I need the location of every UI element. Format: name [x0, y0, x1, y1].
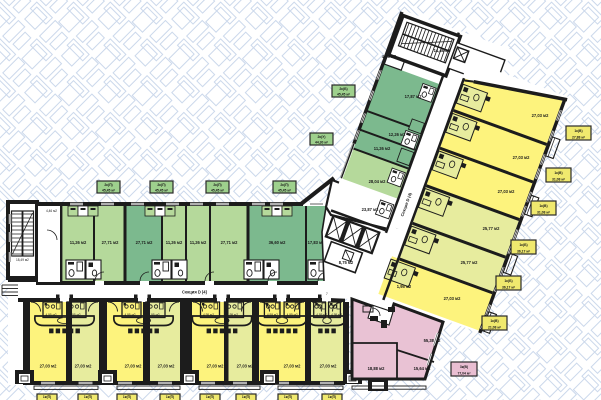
svg-text:27,03 м2: 27,03 м2 [75, 364, 92, 369]
svg-text:45,45 м²: 45,45 м² [102, 189, 116, 193]
svg-text:27,03 м2: 27,03 м2 [513, 155, 530, 160]
svg-text:3к(В): 3к(В) [460, 365, 468, 369]
svg-text:25,77 м2: 25,77 м2 [483, 226, 500, 231]
svg-text:1,95 м2: 1,95 м2 [397, 284, 412, 289]
svg-text:1к(Б): 1к(Б) [504, 279, 512, 283]
svg-text:11,26 м2: 11,26 м2 [70, 240, 87, 245]
svg-text:27,03 м2: 27,03 м2 [207, 364, 224, 369]
svg-text:36,17 м²: 36,17 м² [517, 250, 531, 254]
svg-text:21,08 м²: 21,08 м² [488, 326, 502, 330]
svg-text:27,03 м2: 27,03 м2 [40, 364, 57, 369]
svg-text:36,17 м²: 36,17 м² [502, 286, 516, 290]
svg-text:1к(В): 1к(В) [490, 319, 498, 323]
svg-text:27,71 м2: 27,71 м2 [221, 240, 238, 245]
svg-text:27,71 м2: 27,71 м2 [102, 240, 119, 245]
svg-text:1к(В): 1к(В) [539, 204, 547, 208]
svg-text:27,71 м2: 27,71 м2 [136, 240, 153, 245]
svg-text:2к(П): 2к(П) [157, 183, 165, 187]
svg-text:27,03 м2: 27,03 м2 [498, 189, 515, 194]
svg-text:45,45 м²: 45,45 м² [211, 189, 225, 193]
svg-text:55,38 м2: 55,38 м2 [424, 338, 441, 343]
svg-text:18,49 м2: 18,49 м2 [16, 258, 29, 262]
svg-text:28,04 м2: 28,04 м2 [369, 179, 386, 184]
svg-text:8,75 м2: 8,75 м2 [339, 260, 354, 265]
svg-text:27,03 м2: 27,03 м2 [158, 364, 175, 369]
svg-text:11,26 м2: 11,26 м2 [166, 240, 183, 245]
svg-text:25,77 м2: 25,77 м2 [461, 260, 478, 265]
svg-text:36,60 м2: 36,60 м2 [269, 240, 286, 245]
svg-text:27,03 м2: 27,03 м2 [320, 364, 337, 369]
svg-text:44,30 м²: 44,30 м² [315, 141, 329, 145]
svg-text:2к(У): 2к(У) [318, 135, 326, 139]
svg-text:27,03 м2: 27,03 м2 [237, 364, 254, 369]
svg-text:2к(П): 2к(П) [213, 183, 221, 187]
svg-text:45,45 м²: 45,45 м² [337, 93, 351, 97]
svg-text:23,87 м2: 23,87 м2 [362, 207, 379, 212]
svg-text:Секция D (4): Секция D (4) [182, 290, 208, 295]
svg-text:15,64 м2: 15,64 м2 [414, 366, 431, 371]
svg-text:1к(Б): 1к(Б) [519, 243, 527, 247]
svg-text:11,26 м2: 11,26 м2 [374, 146, 391, 151]
svg-text:27,88 м²: 27,88 м² [572, 136, 586, 140]
svg-text:11,26 м2: 11,26 м2 [190, 240, 207, 245]
svg-text:45,45 м²: 45,45 м² [155, 189, 169, 193]
svg-text:31,08 м²: 31,08 м² [537, 211, 551, 215]
svg-text:18,88 м2: 18,88 м2 [368, 366, 385, 371]
svg-text:2к(П): 2к(П) [280, 183, 288, 187]
svg-text:27,03 м2: 27,03 м2 [125, 364, 142, 369]
svg-text:17,87 м2: 17,87 м2 [405, 94, 422, 99]
svg-text:14,46 м2: 14,46 м2 [434, 48, 451, 53]
svg-text:1к(В): 1к(В) [554, 171, 562, 175]
svg-text:31,08 м²: 31,08 м² [552, 178, 566, 182]
svg-text:27,03 м2: 27,03 м2 [284, 364, 301, 369]
svg-text:4,46 м2: 4,46 м2 [382, 54, 397, 59]
svg-text:2к(Б): 2к(Б) [339, 87, 347, 91]
svg-text:2к(П): 2к(П) [104, 183, 112, 187]
svg-text:27,03 м2: 27,03 м2 [532, 113, 549, 118]
svg-text:45,45 м²: 45,45 м² [278, 189, 292, 193]
svg-text:27,03 м2: 27,03 м2 [444, 296, 461, 301]
svg-text:77,04 м²: 77,04 м² [457, 372, 471, 376]
svg-text:4,46 м2: 4,46 м2 [46, 209, 57, 213]
svg-text:1к(В): 1к(В) [574, 129, 582, 133]
svg-text:12,26 м2: 12,26 м2 [389, 132, 406, 137]
